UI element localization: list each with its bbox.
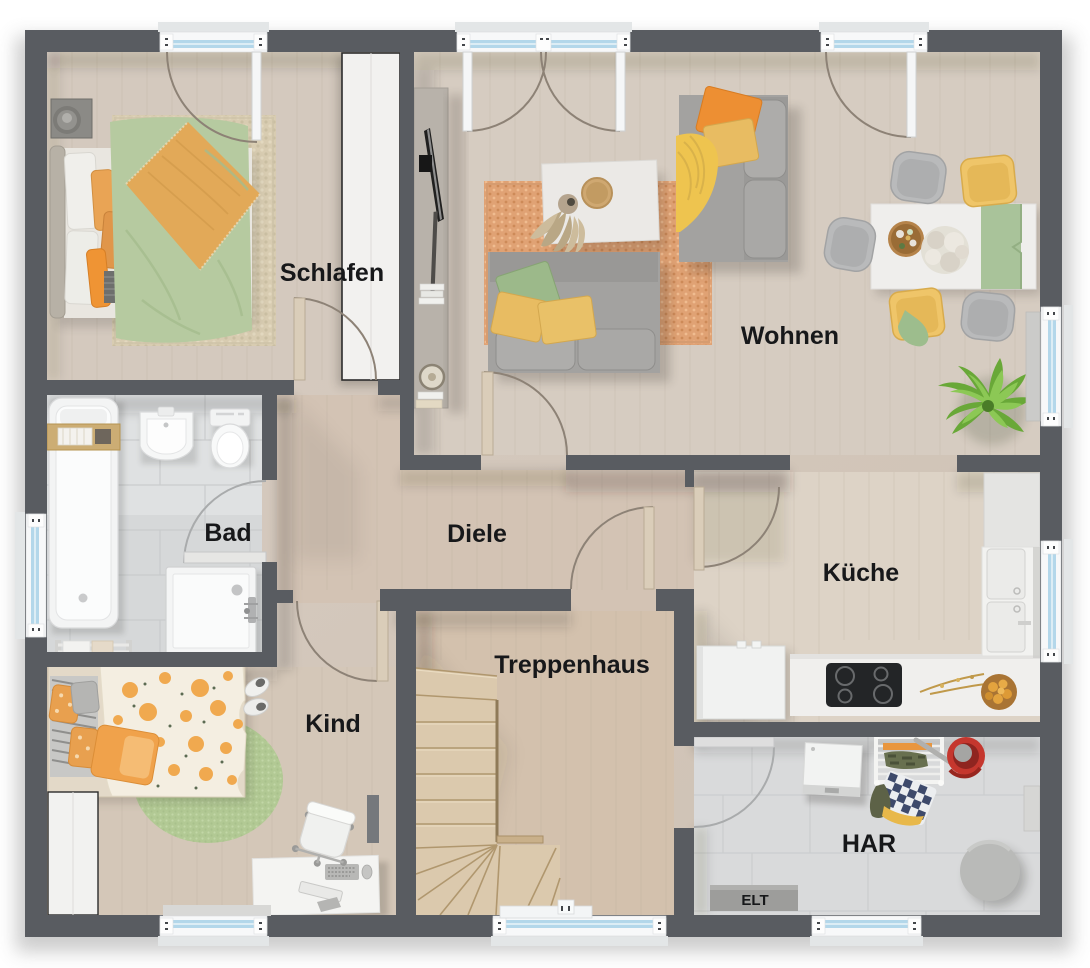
svg-text:Schlafen: Schlafen <box>280 259 384 287</box>
svg-text:Diele: Diele <box>447 520 507 548</box>
svg-text:Treppenhaus: Treppenhaus <box>494 651 650 679</box>
svg-text:ELT: ELT <box>741 892 768 909</box>
svg-text:Wohnen: Wohnen <box>741 322 839 350</box>
svg-text:Kind: Kind <box>305 710 361 738</box>
svg-text:Bad: Bad <box>204 519 251 547</box>
svg-text:HAR: HAR <box>842 830 896 858</box>
svg-text:Küche: Küche <box>823 559 900 587</box>
